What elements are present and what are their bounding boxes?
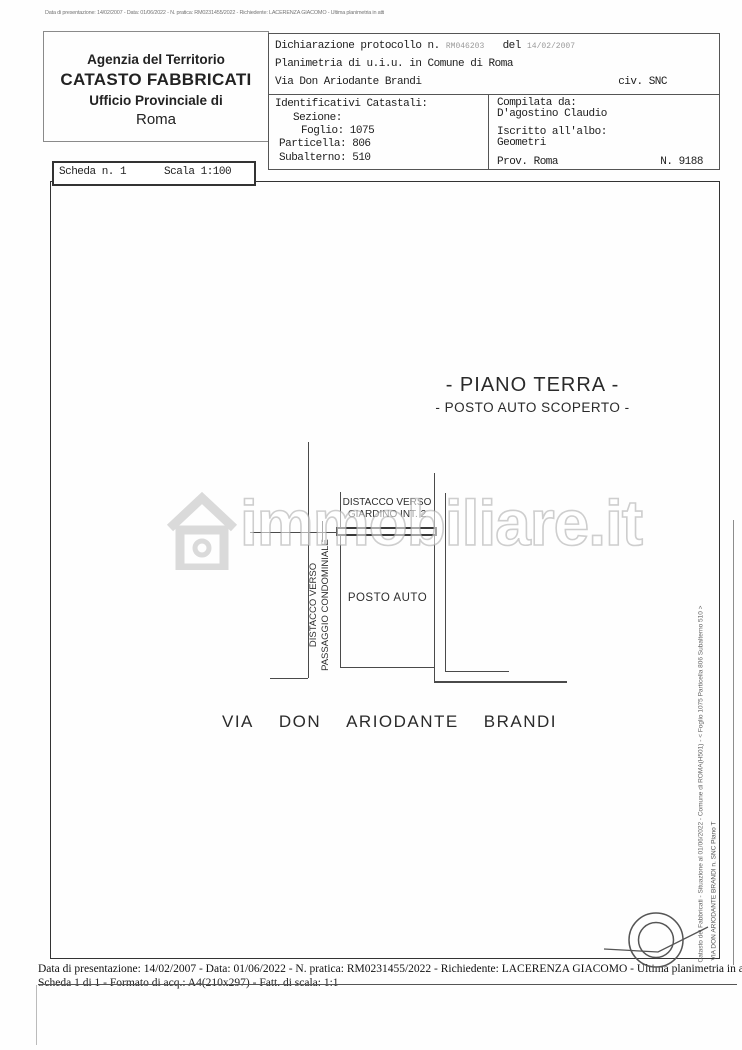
plan-wall-thick-bar — [336, 527, 437, 536]
protocol-date: 14/02/2007 — [527, 42, 575, 51]
footer-strike-line — [38, 984, 737, 985]
floor-title: - PIANO TERRA - — [420, 374, 645, 397]
agency-header-box: Agenzia del Territorio CATASTO FABBRICAT… — [43, 31, 269, 142]
footer-line2: Scheda 1 di 1 - Formato di acq.: A4(210x… — [38, 977, 339, 989]
protocol-label: Dichiarazione protocollo n. — [275, 40, 440, 52]
scan-edge-right — [733, 520, 734, 965]
plan-line-bottom-long — [434, 681, 567, 683]
catastal-title: Identificativi Catastali: — [275, 98, 428, 110]
label-distacco-passaggio-line1: DISTACCO VERSO — [308, 525, 320, 685]
planimetria-line: Planimetria di u.i.u. in Comune di Roma — [275, 58, 513, 70]
street-name-label: VIA DON ARIODANTE BRANDI — [222, 712, 557, 732]
label-posto-auto: POSTO AUTO — [340, 592, 435, 604]
street-word-brandi: BRANDI — [484, 712, 557, 732]
albo-number: N. 9188 — [660, 156, 703, 168]
plan-titles: - PIANO TERRA - - POSTO AUTO SCOPERTO - — [420, 374, 645, 415]
label-distacco-giardino-line1: DISTACCO VERSO — [328, 497, 446, 509]
compilata-name: D'agostino Claudio — [497, 108, 607, 120]
foglio: Foglio: 1075 — [301, 125, 374, 137]
subalterno: Subalterno: 510 — [279, 152, 371, 164]
del-label: del — [503, 40, 521, 52]
sezione: Sezione: — [293, 112, 342, 124]
albo-value: Geometri — [497, 137, 546, 149]
office-city: Roma — [44, 111, 268, 128]
cadastral-document-page: Data di presentazione: 14/02/2007 - Data… — [0, 0, 742, 1050]
protocol-number: RM046203 — [446, 42, 484, 51]
protocol-line: Dichiarazione protocollo n. RM046203 del… — [275, 40, 575, 52]
street-word-don: DON — [279, 712, 321, 732]
street-word-via: VIA — [222, 712, 254, 732]
scan-header-line: Data di presentazione: 14/02/2007 - Data… — [45, 10, 460, 16]
box-divider-horizontal — [269, 94, 719, 95]
scheda-box: Scheda n. 1 Scala 1:100 — [52, 161, 256, 186]
street-word-ariodante: ARIODANTE — [346, 712, 459, 732]
label-distacco-passaggio: DISTACCO VERSO PASSAGGIO CONDOMINIALE — [308, 525, 334, 685]
label-distacco-giardino: DISTACCO VERSO GIARDINO INT. 2 — [328, 497, 446, 520]
label-distacco-passaggio-line2: PASSAGGIO CONDOMINIALE — [320, 525, 332, 685]
plan-frame — [50, 181, 720, 959]
civic-number: civ. SNC — [618, 76, 667, 88]
declaration-box: Dichiarazione protocollo n. RM046203 del… — [268, 33, 720, 170]
catasto-title: CATASTO FABBRICATI — [44, 70, 268, 90]
particella: Particella: 806 — [279, 138, 371, 150]
side-caption-catasto: Catasto dei Fabbricati - Situazione al 0… — [698, 533, 705, 963]
street-line: Via Don Ariodante Brandi — [275, 76, 421, 88]
provincia: Prov. Roma — [497, 156, 558, 168]
plan-line-parking-bottom — [340, 667, 435, 668]
box-divider-vertical — [488, 94, 489, 169]
label-distacco-giardino-line2: GIARDINO INT. 2 — [328, 509, 446, 521]
scheda-number: Scheda n. 1 — [59, 166, 126, 178]
scan-edge-left — [36, 985, 37, 1045]
plan-line-bottom-left — [270, 678, 308, 679]
agency-name: Agenzia del Territorio — [44, 52, 268, 67]
plan-line-right-inner-foot — [445, 671, 509, 672]
unit-type-title: - POSTO AUTO SCOPERTO - — [420, 400, 645, 415]
office-label: Ufficio Provinciale di — [44, 93, 268, 108]
scala-value: Scala 1:100 — [164, 166, 231, 178]
stamp-circle-icon — [596, 905, 716, 980]
